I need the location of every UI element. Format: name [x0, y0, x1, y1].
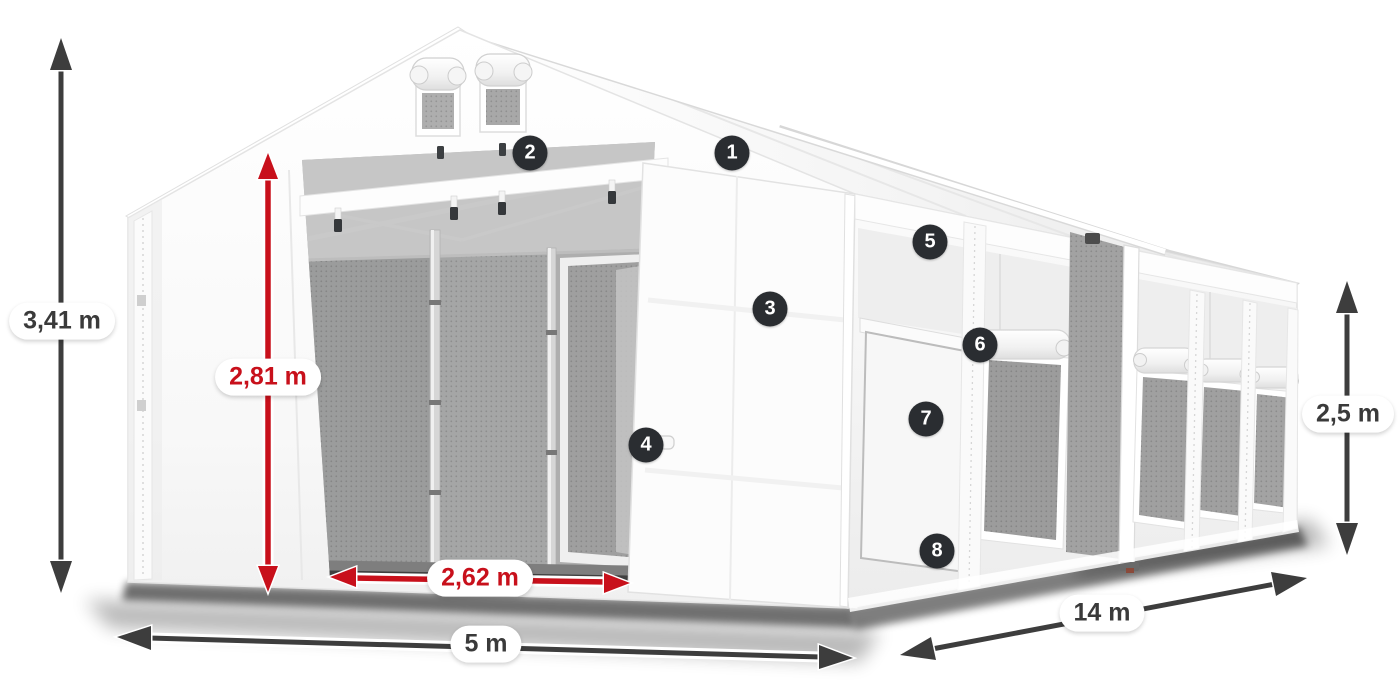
vent-tie-clip	[499, 143, 506, 156]
tie-webbing	[335, 208, 341, 220]
vent-mesh-texture	[422, 93, 454, 129]
door-leaf	[628, 163, 855, 608]
arrowhead-right	[1271, 572, 1307, 596]
pole-foot-anchor	[1126, 568, 1134, 573]
arrowhead-up	[50, 38, 72, 70]
tie-clip	[450, 207, 458, 220]
pole-clamp	[429, 400, 441, 405]
strap-buckle	[137, 400, 146, 411]
tie-webbing	[609, 180, 615, 192]
vent-tie-clip	[437, 146, 444, 159]
roll-end-cap	[514, 63, 532, 81]
vent-mesh-texture	[486, 89, 520, 125]
callout-badge-1: 1	[715, 136, 750, 171]
side-window-1	[976, 330, 1072, 549]
roll-end-cap	[475, 62, 493, 80]
roll-end-cap	[1134, 354, 1147, 367]
interior-mesh-middle-texture	[438, 252, 554, 582]
tie-strap	[450, 196, 458, 220]
dimension-label-side-length: 14 m	[1060, 595, 1145, 632]
arrowhead-left	[900, 637, 936, 660]
dimension-label-clear-entrance-height: 2,81 m	[215, 359, 321, 396]
roll-end-cap	[410, 66, 428, 84]
window-mesh-texture	[1139, 377, 1190, 522]
callout-badge-6: 6	[963, 328, 998, 363]
arrowhead-up	[1336, 281, 1358, 313]
arrowhead-down	[50, 561, 72, 593]
side-door-face	[861, 332, 970, 572]
strap-buckle	[137, 295, 146, 306]
dimension-label-total-height: 3,41 m	[9, 303, 115, 340]
tent-dimension-diagram: 3,41 m 2,81 m 2,62 m 5 m 14 m 2,5 m 1 2 …	[0, 0, 1400, 700]
gable-vent-right	[475, 54, 532, 132]
tie-clip	[608, 191, 616, 204]
callout-badge-3: 3	[753, 292, 788, 327]
callout-badge-7: 7	[909, 402, 944, 437]
tie-webbing	[499, 191, 505, 203]
arrowhead-down	[1336, 523, 1358, 555]
gable-vent-left	[410, 58, 466, 136]
open-door-gap-texture	[1066, 232, 1128, 560]
dimension-label-side-height: 2,5 m	[1302, 396, 1394, 433]
pole-clamp	[429, 490, 441, 495]
front-right-door-leaf	[628, 163, 855, 608]
tie-strap	[334, 208, 342, 232]
callout-badge-5: 5	[913, 225, 948, 260]
callout-badge-8: 8	[920, 534, 955, 569]
door-track-clamp	[1085, 233, 1100, 244]
window-mesh-texture	[984, 360, 1061, 540]
pole-clamp	[546, 450, 557, 455]
callout-badge-4: 4	[629, 428, 664, 463]
interior-pole-highlight	[548, 248, 551, 570]
dimension-label-entrance-width: 2,62 m	[427, 560, 533, 597]
tie-strap	[498, 191, 506, 215]
pole-clamp	[429, 300, 441, 305]
roll-end-cap	[448, 67, 466, 85]
tent-illustration	[0, 0, 1400, 700]
callout-badge-2: 2	[513, 136, 548, 171]
tie-webbing	[451, 196, 457, 208]
dimension-label-front-width: 5 m	[450, 626, 521, 663]
tie-clip	[334, 219, 342, 232]
window-mesh-texture	[1200, 387, 1245, 516]
tie-clip	[498, 202, 506, 215]
pole-clamp	[546, 330, 557, 335]
arrowhead-left	[117, 626, 151, 650]
side-open-door	[1066, 232, 1139, 573]
tie-strap	[608, 180, 616, 204]
